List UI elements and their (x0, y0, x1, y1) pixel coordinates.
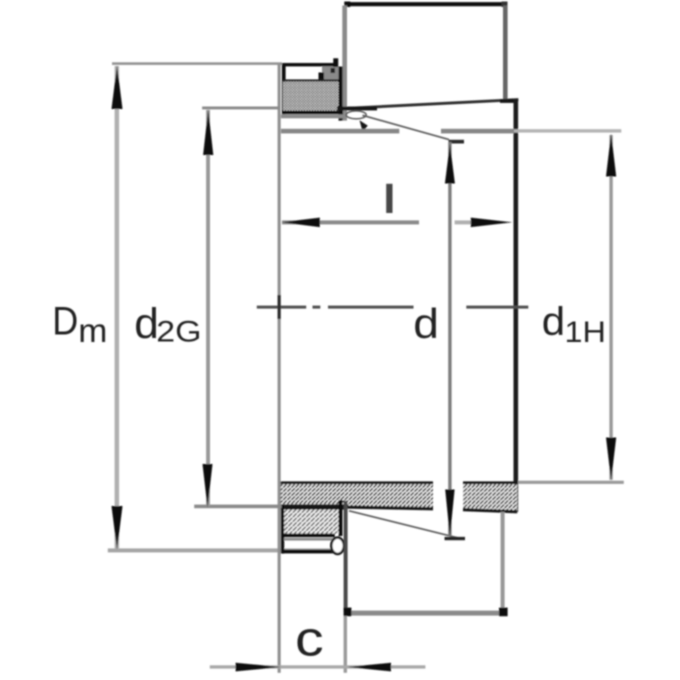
svg-text:m: m (78, 313, 107, 350)
svg-text:d: d (413, 301, 439, 348)
svg-text:d: d (542, 299, 565, 344)
svg-text:1H: 1H (565, 315, 606, 349)
svg-text:2G: 2G (156, 314, 201, 348)
svg-text:d: d (134, 299, 159, 347)
svg-text:D: D (52, 300, 78, 344)
svg-text:c: c (295, 612, 324, 666)
